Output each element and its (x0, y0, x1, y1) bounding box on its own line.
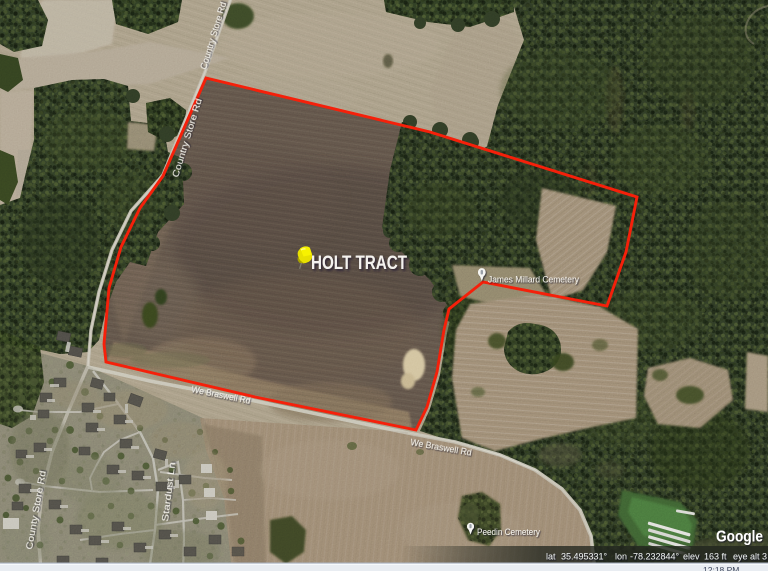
svg-text:lat35.495331°lon-78.232844°ele: lat35.495331°lon-78.232844°elev163 fteye… (546, 552, 767, 562)
svg-text:HOLT TRACT: HOLT TRACT (311, 253, 407, 274)
svg-text:12:18 PM: 12:18 PM (703, 565, 739, 571)
svg-text:James Millard Cemetery: James Millard Cemetery (488, 275, 579, 285)
svg-text:Peedin Cemetery: Peedin Cemetery (477, 527, 540, 537)
svg-text:Google: Google (716, 529, 763, 546)
